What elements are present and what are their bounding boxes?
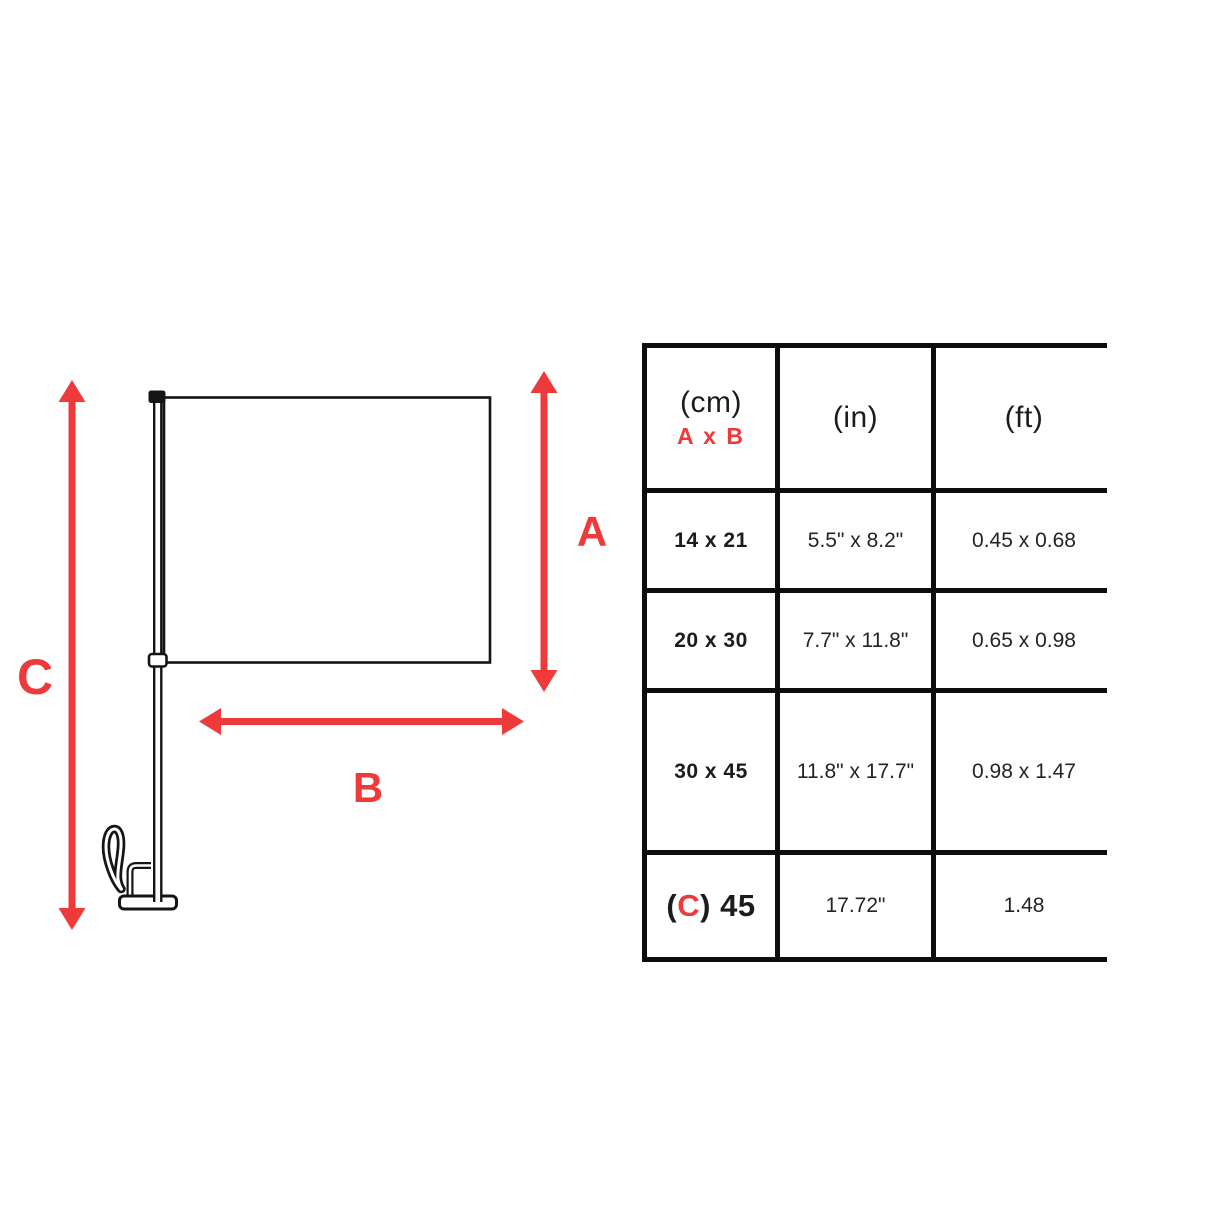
table-cell-in-20x30: 7.7" x 11.8" [780, 593, 931, 688]
c45-open-paren: ( [666, 888, 677, 924]
size-table: (cm) A x B (in) (ft) 14 x 21 5.5" x 8.2"… [642, 343, 1107, 962]
table-cell-in-c45: 17.72" [780, 855, 931, 957]
table-cell-cm-14x21: 14 x 21 [647, 493, 775, 588]
pole-cap [149, 391, 166, 404]
clip-bracket-icon [130, 866, 151, 897]
dimension-arrow-b [199, 708, 524, 735]
label-b: B [353, 764, 383, 811]
header-cell-ft: (ft) [936, 348, 1112, 488]
table-cell-ft-c45: 1.48 [936, 855, 1112, 957]
label-c: C [17, 649, 53, 705]
table-cell-in-14x21: 5.5" x 8.2" [780, 493, 931, 588]
table-cell-in-30x45: 11.8" x 17.7" [780, 693, 931, 850]
c45-rest: ) 45 [700, 888, 755, 924]
header-cell-in: (in) [780, 348, 931, 488]
table-cell-cm-20x30: 20 x 30 [647, 593, 775, 688]
label-a: A [577, 508, 607, 555]
pole-collar [149, 654, 167, 667]
table-cell-cm-30x45: 30 x 45 [647, 693, 775, 850]
table-cell-ft-30x45: 0.98 x 1.47 [936, 693, 1112, 850]
table-cell-ft-20x30: 0.65 x 0.98 [936, 593, 1112, 688]
flag-rect [164, 398, 490, 663]
dimension-arrow-c [59, 380, 86, 930]
header-unit-cm: (cm) [680, 386, 742, 420]
table-cell-ft-14x21: 0.45 x 0.68 [936, 493, 1112, 588]
dimension-arrow-a [531, 371, 558, 692]
header-cell-cm: (cm) A x B [647, 348, 775, 488]
clip-base [120, 896, 177, 909]
car-flag-size-infographic: A B C (cm) A x B (in) (ft) 14 x 21 5.5" … [0, 0, 1214, 1214]
table-cell-cm-c45: (C) 45 [647, 855, 775, 957]
c45-letter-c: C [677, 888, 700, 924]
header-axb: A x B [677, 423, 745, 450]
